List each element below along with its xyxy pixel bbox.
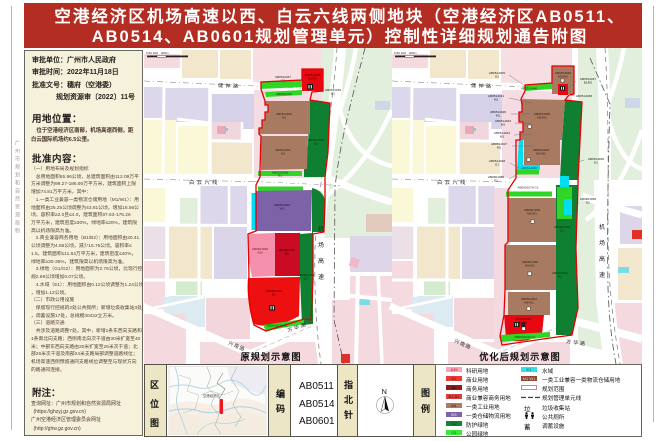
svg-text:B1/B2: B1/B2 <box>519 321 528 325</box>
svg-text:M1/W1: M1/W1 <box>536 152 546 156</box>
svg-text:M1/W1: M1/W1 <box>525 264 535 268</box>
svg-text:M1: M1 <box>281 152 286 156</box>
svg-text:E1: E1 <box>331 92 335 96</box>
svg-text:白云六线: 白云六线 <box>437 178 468 186</box>
svg-text:M1: M1 <box>496 114 501 118</box>
svg-text:白云六线: 白云六线 <box>189 178 220 186</box>
svg-text:B1/B2: B1/B2 <box>308 77 317 81</box>
svg-text:AB0514038: AB0514038 <box>521 166 537 170</box>
svg-text:G1: G1 <box>281 79 285 83</box>
svg-text:高: 高 <box>318 257 324 265</box>
svg-text:AB0514040: AB0514040 <box>521 87 537 91</box>
svg-text:M1: M1 <box>501 123 506 127</box>
svg-text:机: 机 <box>599 223 605 231</box>
svg-text:G2: G2 <box>558 275 562 279</box>
svg-text:G1: G1 <box>495 163 499 167</box>
svg-text:健神路: 健神路 <box>218 82 241 90</box>
svg-text:健神路: 健神路 <box>471 82 494 90</box>
svg-text:AB0514036: AB0514036 <box>576 94 592 98</box>
svg-text:速: 速 <box>599 272 605 279</box>
svg-text:原规划示意图: 原规划示意图 <box>240 351 301 362</box>
svg-text:M1: M1 <box>500 135 505 139</box>
svg-text:G1: G1 <box>495 75 499 79</box>
svg-text:G1: G1 <box>278 174 282 178</box>
svg-text:M1/W1: M1/W1 <box>537 116 547 120</box>
svg-text:AB0601034 G1: AB0601034 G1 <box>266 324 287 328</box>
svg-text:E1: E1 <box>586 201 590 205</box>
svg-text:G2: G2 <box>304 277 308 281</box>
svg-text:场: 场 <box>318 241 324 249</box>
svg-text:A35: A35 <box>257 251 263 255</box>
svg-text:G2: G2 <box>314 142 318 146</box>
svg-text:场: 场 <box>599 239 605 247</box>
svg-text:M1/W1: M1/W1 <box>524 301 534 305</box>
svg-text:W1: W1 <box>280 207 285 211</box>
svg-text:B1/B2: B1/B2 <box>584 81 593 85</box>
svg-text:AB0601042 G1: AB0601042 G1 <box>514 335 535 339</box>
svg-text:M1/W1: M1/W1 <box>558 75 568 79</box>
svg-text:AB0601078 G1: AB0601078 G1 <box>517 186 538 190</box>
svg-text:N: N <box>382 387 387 396</box>
svg-text:空港经济区: 空港经济区 <box>203 393 221 398</box>
svg-text:M1/W1: M1/W1 <box>527 212 537 216</box>
svg-text:G2: G2 <box>560 229 564 233</box>
svg-text:机: 机 <box>318 225 324 233</box>
svg-text:速: 速 <box>318 274 324 281</box>
svg-text:E1: E1 <box>494 179 498 183</box>
svg-text:优化后规划示意图: 优化后规划示意图 <box>479 351 561 362</box>
svg-text:B1: B1 <box>272 293 276 297</box>
svg-text:M1: M1 <box>494 98 499 102</box>
svg-text:E1: E1 <box>594 161 598 165</box>
svg-text:M1: M1 <box>282 116 287 120</box>
svg-text:高: 高 <box>599 255 605 263</box>
svg-text:M1: M1 <box>497 146 502 150</box>
svg-text:B1: B1 <box>285 252 289 256</box>
svg-text:AB0511040: AB0511040 <box>276 92 292 96</box>
